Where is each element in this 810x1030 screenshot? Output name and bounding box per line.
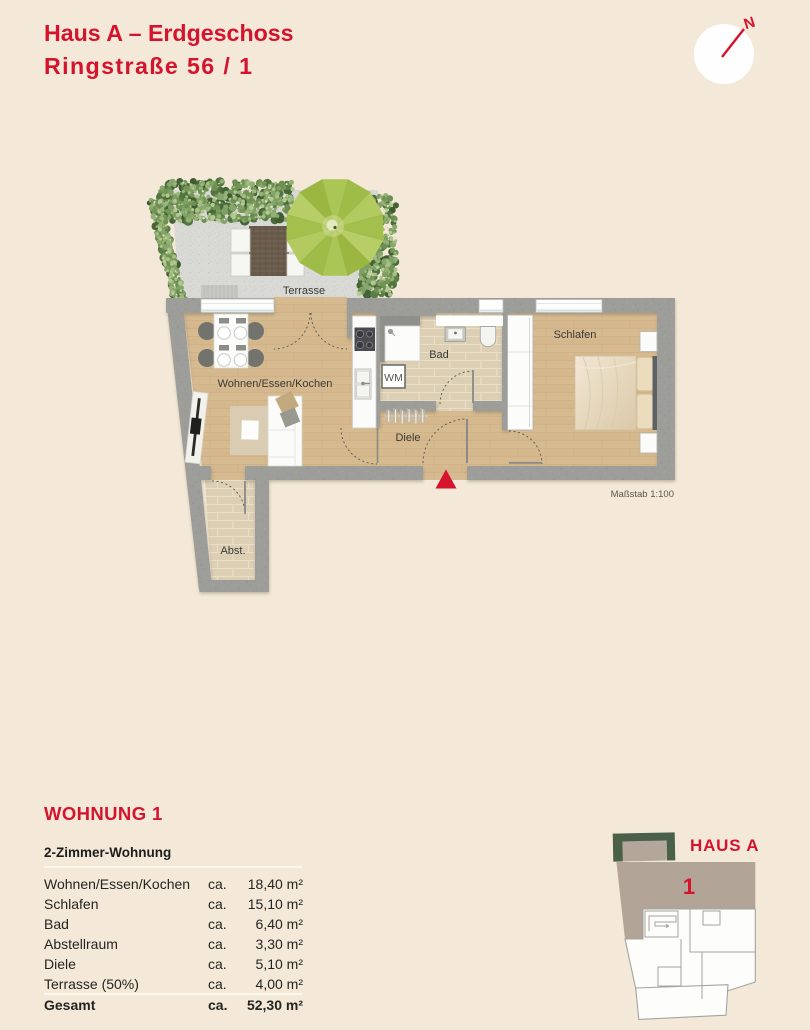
svg-text:Wohnen/Essen/Kochen: Wohnen/Essen/Kochen [218, 378, 333, 390]
svg-text:Maßstab 1:100: Maßstab 1:100 [611, 489, 674, 500]
svg-text:HAUS A: HAUS A [690, 836, 759, 855]
svg-text:1: 1 [683, 874, 695, 899]
svg-text:Diele: Diele [395, 432, 420, 444]
svg-text:Terrasse: Terrasse [283, 285, 325, 297]
svg-text:Abst.: Abst. [220, 545, 245, 557]
svg-text:WM: WM [384, 372, 403, 384]
svg-text:Bad: Bad [429, 349, 449, 361]
svg-text:Schlafen: Schlafen [554, 329, 597, 341]
